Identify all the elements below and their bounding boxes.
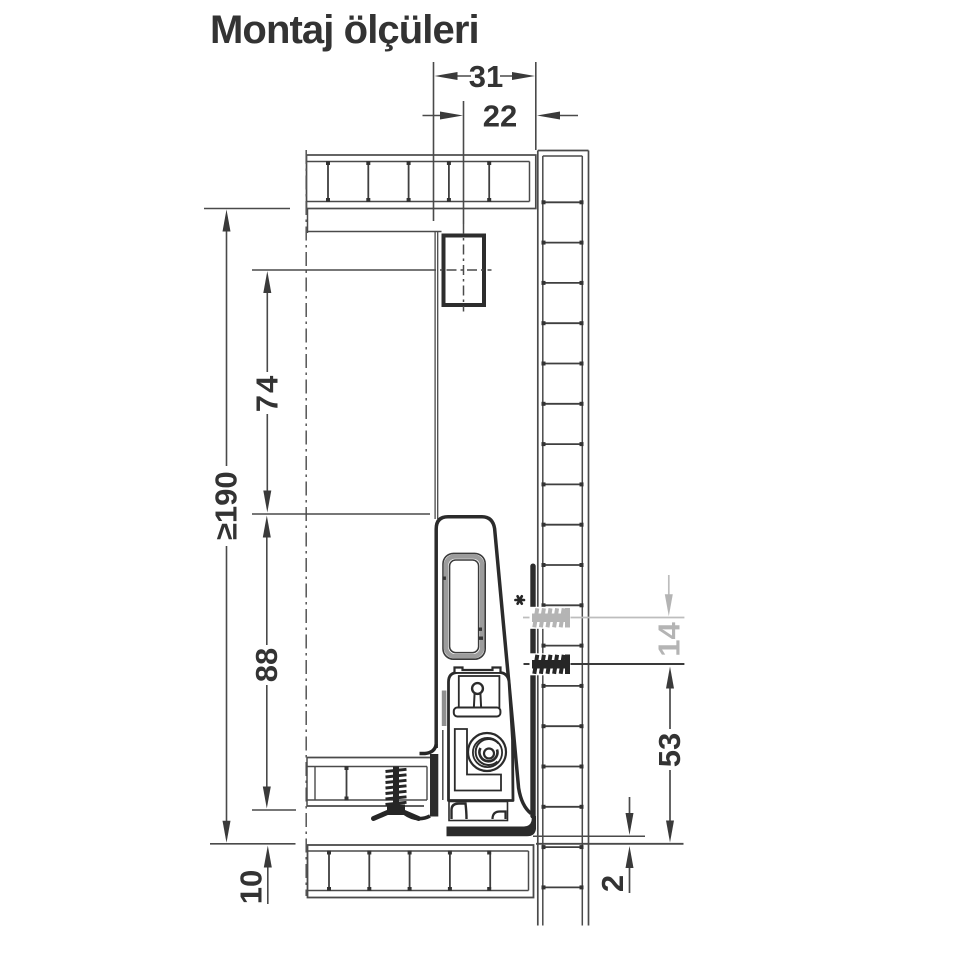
svg-text:Montaj ölçüleri: Montaj ölçüleri (210, 8, 479, 52)
svg-text:53: 53 (652, 733, 687, 767)
svg-text:14: 14 (652, 622, 687, 657)
svg-text:88: 88 (249, 648, 284, 682)
svg-text:74: 74 (250, 374, 285, 412)
svg-text:31: 31 (469, 59, 503, 94)
svg-text:2: 2 (595, 875, 630, 892)
svg-text:10: 10 (234, 870, 269, 904)
svg-text:≥190: ≥190 (209, 471, 244, 540)
svg-text:22: 22 (483, 99, 517, 134)
